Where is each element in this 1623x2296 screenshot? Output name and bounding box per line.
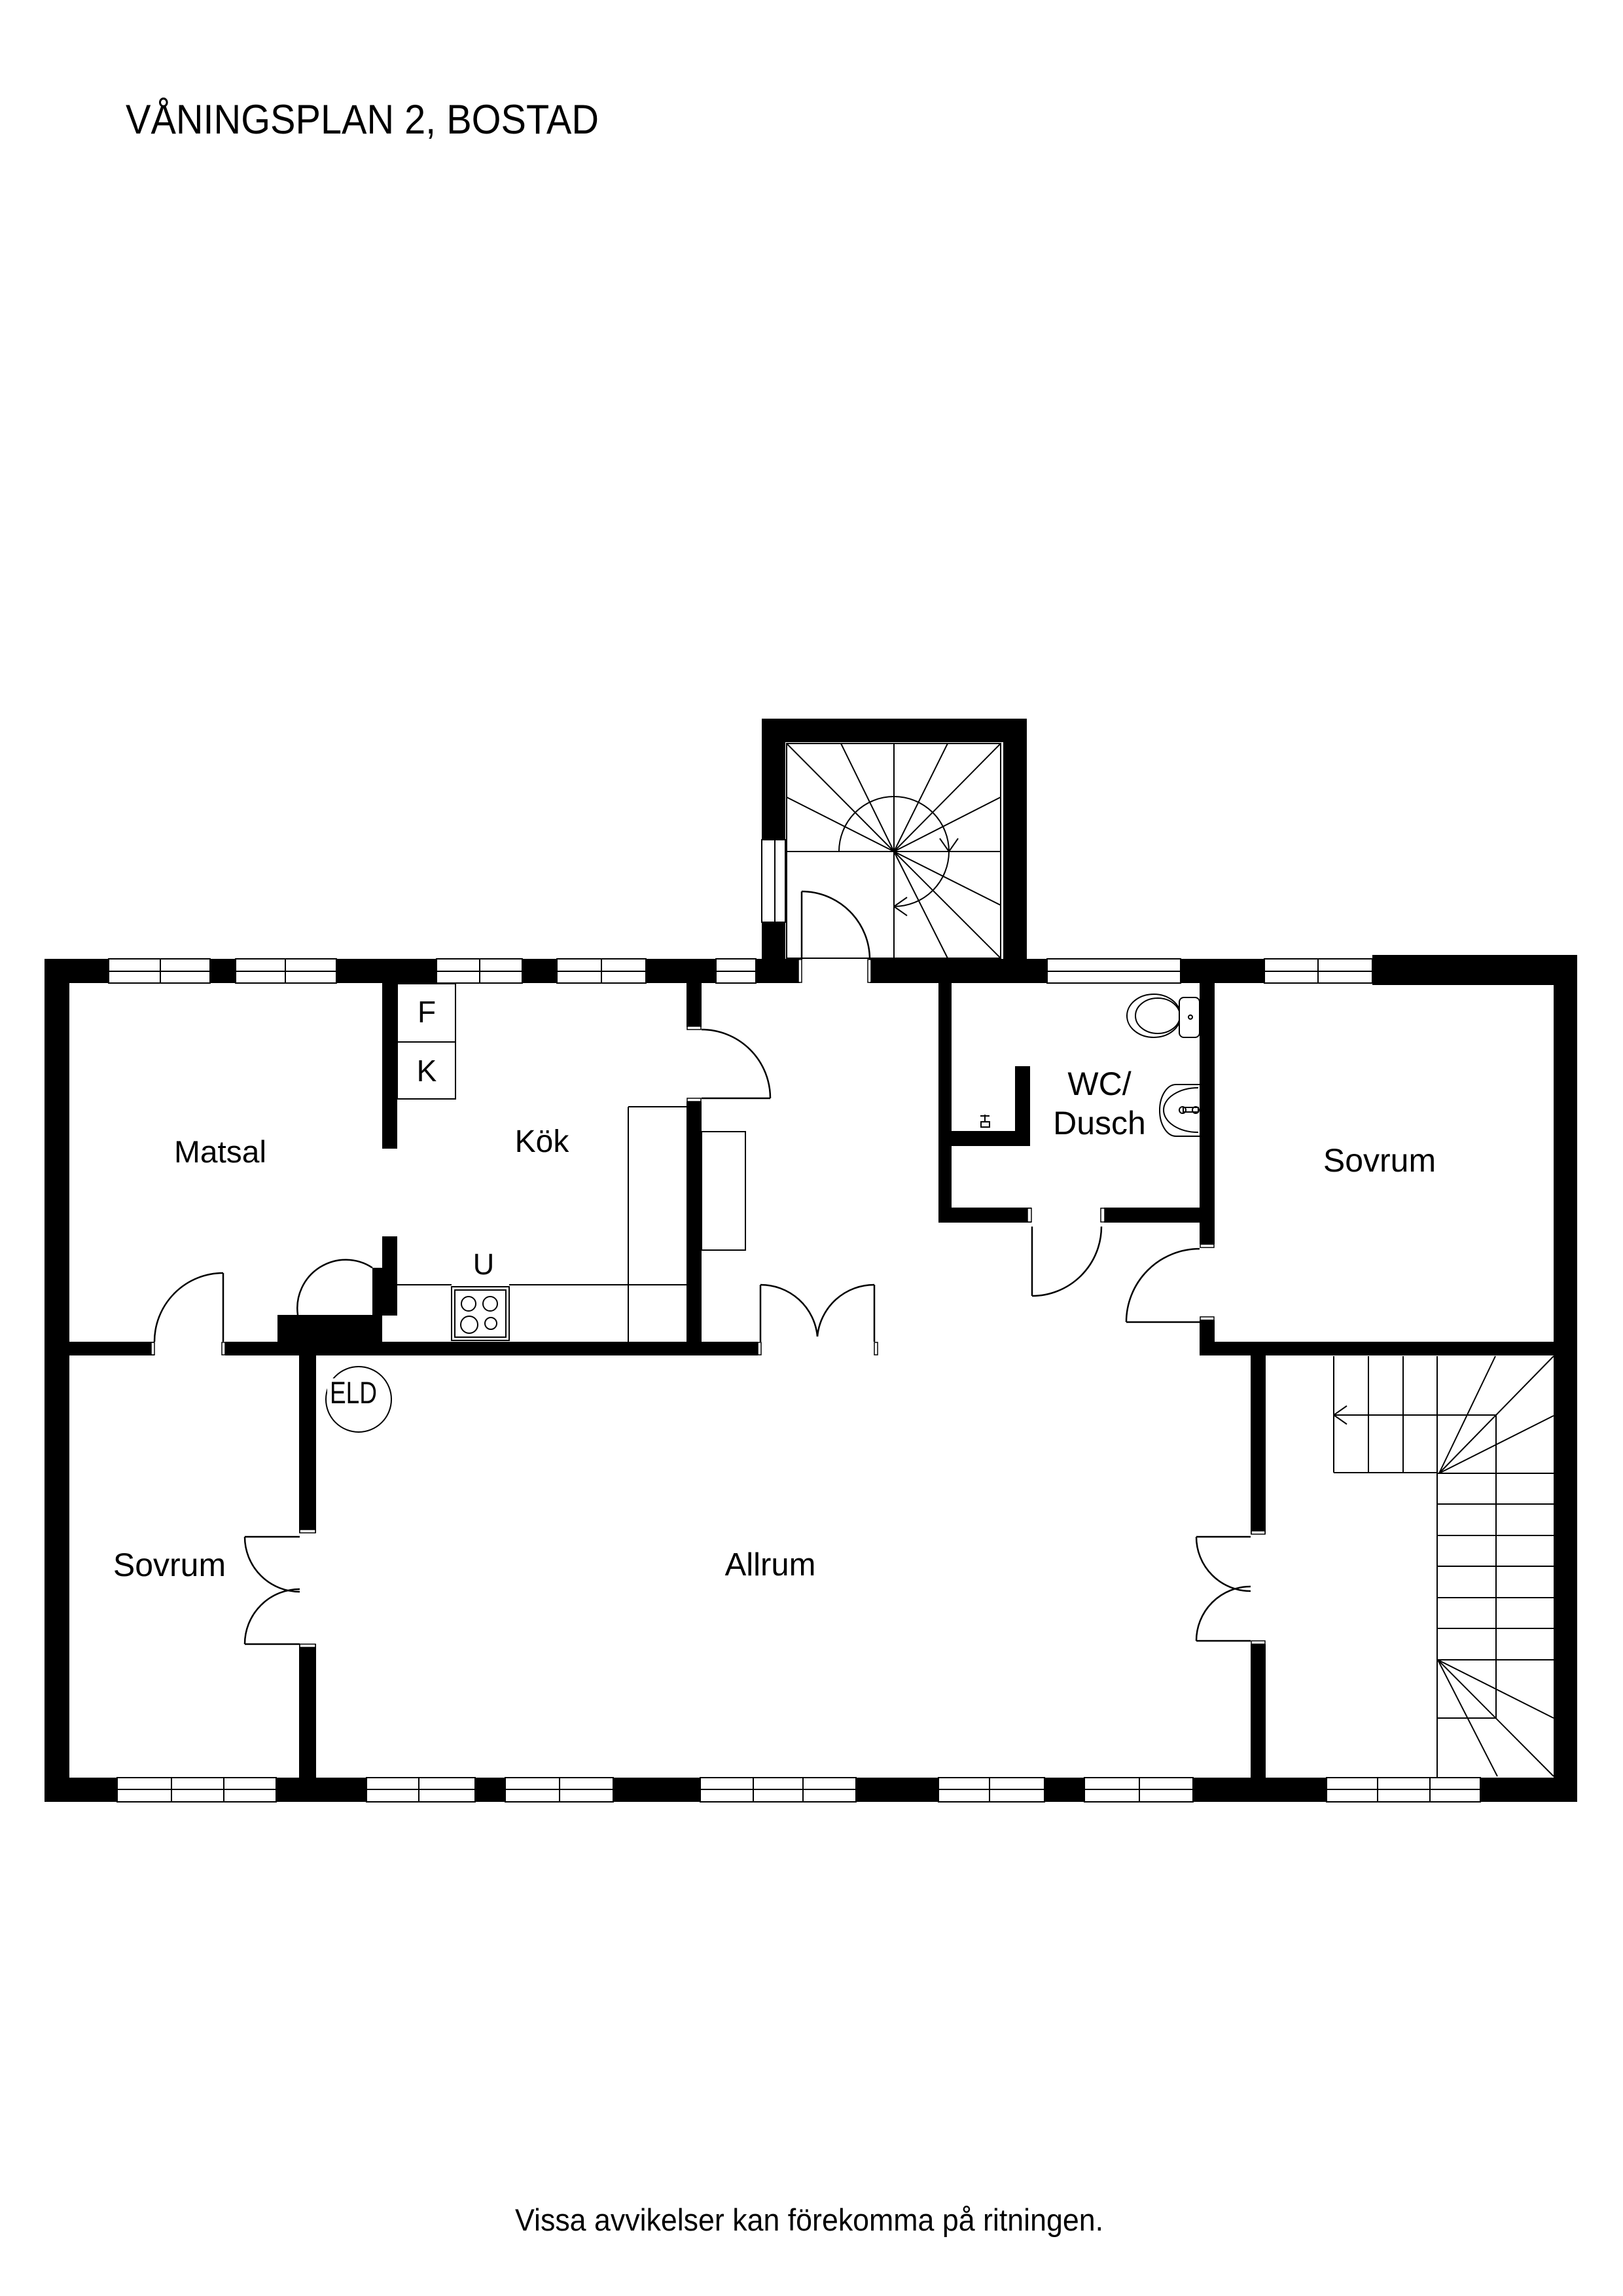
svg-text:Dusch: Dusch (1053, 1105, 1146, 1141)
svg-text:WC/: WC/ (1067, 1066, 1131, 1102)
svg-text:Allrum: Allrum (725, 1547, 816, 1583)
svg-text:Matsal: Matsal (174, 1134, 266, 1169)
svg-text:Vissa avvikelser kan förekomma: Vissa avvikelser kan förekomma på ritnin… (515, 2202, 1103, 2237)
svg-text:Sovrum: Sovrum (1323, 1142, 1436, 1179)
svg-text:Sovrum: Sovrum (113, 1547, 226, 1583)
svg-text:VÅNINGSPLAN 2, BOSTAD: VÅNINGSPLAN 2, BOSTAD (126, 97, 599, 143)
svg-text:Kök: Kök (515, 1124, 570, 1159)
svg-text:ELD: ELD (330, 1375, 377, 1410)
svg-text:U: U (473, 1247, 495, 1281)
svg-text:K: K (417, 1054, 437, 1088)
svg-text:F: F (418, 995, 436, 1029)
